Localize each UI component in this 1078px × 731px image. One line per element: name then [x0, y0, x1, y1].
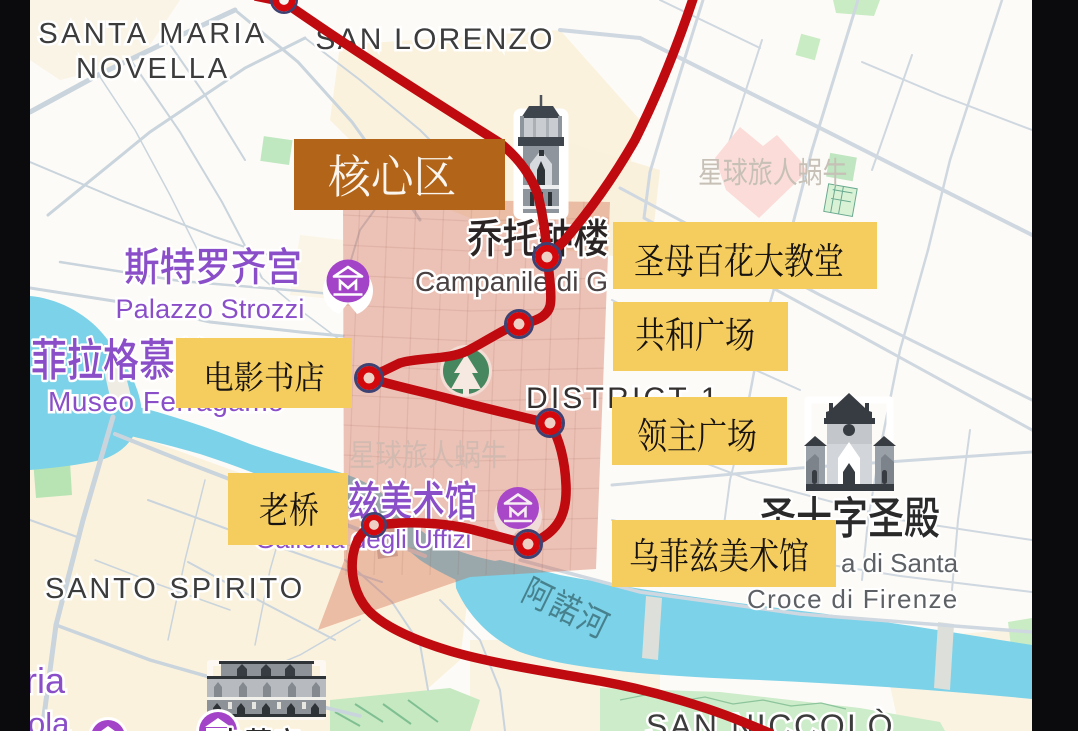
svg-text:ria: ria: [25, 660, 66, 701]
svg-text:SANTO SPIRITO: SANTO SPIRITO: [45, 573, 305, 605]
svg-text:a di Santa: a di Santa: [841, 548, 959, 578]
svg-text:SAN NICCOLÒ: SAN NICCOLÒ: [646, 708, 895, 731]
svg-text:NOVELLA: NOVELLA: [76, 53, 230, 85]
svg-text:ola: ola: [28, 706, 70, 731]
svg-text:Palazzo Strozzi: Palazzo Strozzi: [115, 294, 304, 324]
svg-text:Croce di Firenze: Croce di Firenze: [747, 584, 959, 614]
svg-text:Campanile di G: Campanile di G: [415, 266, 608, 297]
svg-text:SANTA MARIA: SANTA MARIA: [38, 18, 267, 50]
